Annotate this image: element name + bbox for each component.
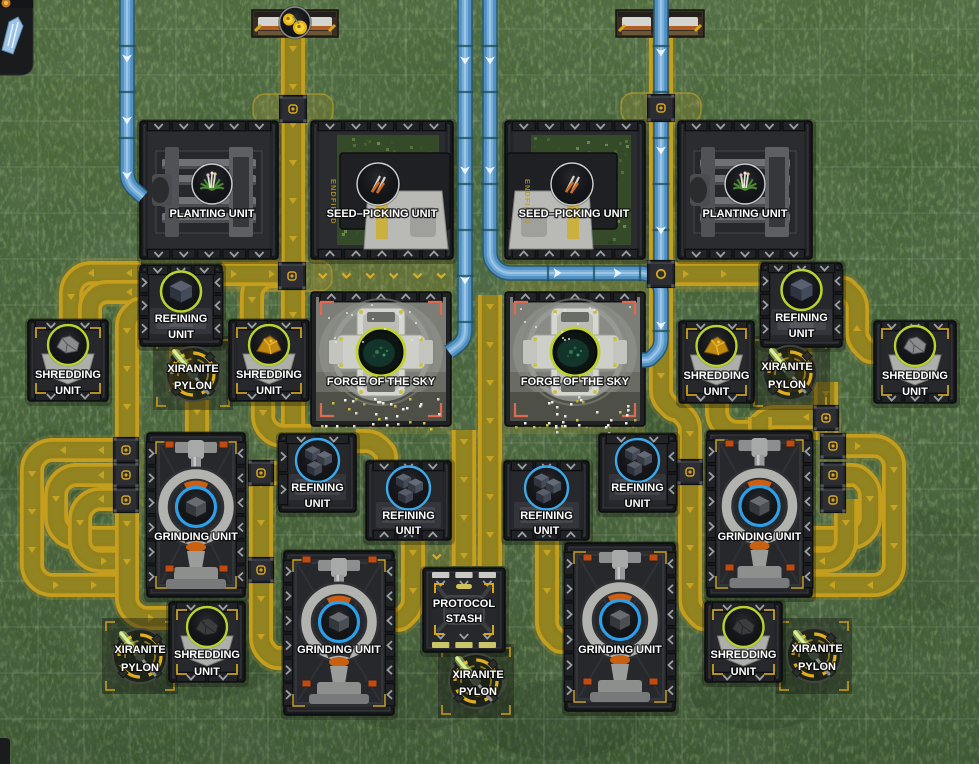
svg-text:FORGE OF THE SKY: FORGE OF THE SKY [521, 376, 630, 388]
svg-text:GRINDING UNIT: GRINDING UNIT [154, 531, 238, 543]
svg-text:XIRANITE: XIRANITE [114, 644, 165, 656]
svg-text:UNIT: UNIT [305, 498, 331, 510]
svg-text:UNIT: UNIT [256, 385, 282, 397]
svg-text:UNIT: UNIT [789, 328, 815, 340]
svg-text:PYLON: PYLON [459, 686, 497, 698]
svg-text:SHREDDING: SHREDDING [882, 370, 948, 382]
svg-text:UNIT: UNIT [55, 385, 81, 397]
svg-text:PROTOCOL: PROTOCOL [433, 598, 495, 610]
svg-text:UNIT: UNIT [396, 525, 422, 537]
svg-text:SHREDDING: SHREDDING [35, 369, 101, 381]
svg-text:REFINING: REFINING [520, 510, 573, 522]
svg-text:SHREDDING: SHREDDING [236, 369, 302, 381]
svg-text:PYLON: PYLON [174, 380, 212, 392]
svg-text:SHREDDING: SHREDDING [710, 649, 776, 661]
svg-text:XIRANITE: XIRANITE [761, 361, 812, 373]
svg-text:REFINING: REFINING [611, 482, 664, 494]
svg-text:SEED–PICKING UNIT: SEED–PICKING UNIT [519, 208, 630, 220]
svg-text:REFINING: REFINING [382, 510, 435, 522]
svg-text:GRINDING UNIT: GRINDING UNIT [718, 531, 802, 543]
svg-text:XIRANITE: XIRANITE [791, 643, 842, 655]
svg-text:UNIT: UNIT [625, 498, 651, 510]
svg-text:UNIT: UNIT [704, 386, 730, 398]
svg-text:PLANTING UNIT: PLANTING UNIT [170, 208, 255, 220]
svg-text:XIRANITE: XIRANITE [452, 669, 503, 681]
svg-text:GRINDING UNIT: GRINDING UNIT [578, 644, 662, 656]
svg-text:REFINING: REFINING [291, 482, 344, 494]
svg-text:REFINING: REFINING [775, 312, 828, 324]
svg-text:UNIT: UNIT [168, 329, 194, 341]
svg-text:PYLON: PYLON [798, 661, 836, 673]
svg-text:XIRANITE: XIRANITE [167, 363, 218, 375]
svg-text:PYLON: PYLON [121, 662, 159, 674]
svg-text:PLANTING UNIT: PLANTING UNIT [703, 208, 788, 220]
svg-text:SHREDDING: SHREDDING [174, 649, 240, 661]
svg-text:GRINDING UNIT: GRINDING UNIT [297, 644, 381, 656]
svg-text:PYLON: PYLON [768, 379, 806, 391]
svg-text:SEED–PICKING UNIT: SEED–PICKING UNIT [327, 208, 438, 220]
svg-text:FORGE OF THE SKY: FORGE OF THE SKY [327, 376, 436, 388]
svg-text:UNIT: UNIT [194, 666, 220, 678]
svg-text:STASH: STASH [446, 613, 483, 625]
svg-text:UNIT: UNIT [902, 386, 928, 398]
svg-text:REFINING: REFINING [155, 313, 208, 325]
svg-text:SHREDDING: SHREDDING [683, 370, 749, 382]
svg-text:UNIT: UNIT [534, 525, 560, 537]
svg-text:UNIT: UNIT [731, 666, 757, 678]
